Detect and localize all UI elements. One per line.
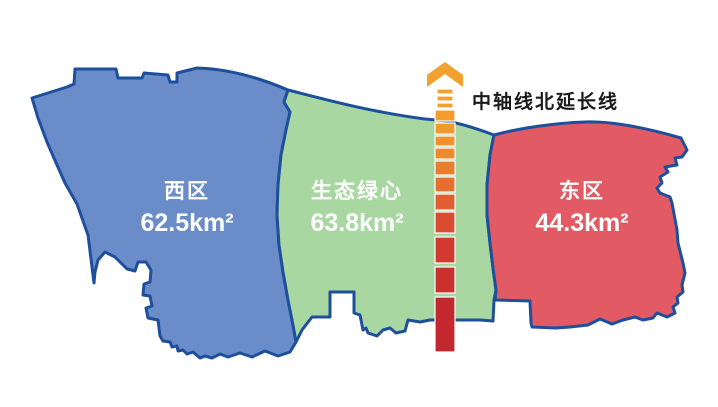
axis-dash-segment	[437, 96, 453, 101]
region-east-shape	[487, 122, 687, 328]
axis-label: 中轴线北延长线	[472, 87, 619, 114]
district-map-figure: 西区 62.5km² 生态绿心 63.8km² 东区 44.3km² 中轴线北延…	[0, 0, 718, 407]
axis-dash-segment	[435, 123, 455, 134]
axis-dash-segment	[435, 136, 455, 146]
axis-dash-line	[435, 89, 455, 352]
axis-dash-segment	[435, 110, 455, 121]
axis-dash-segment	[435, 194, 455, 210]
axis-dash-segment	[435, 237, 455, 263]
map-canvas	[0, 0, 718, 407]
axis-dash-segment	[435, 297, 455, 352]
axis-dash-segment	[437, 89, 453, 94]
region-green-heart-shape	[277, 90, 496, 342]
axis-dash-segment	[435, 212, 455, 233]
axis-dash-segment	[435, 161, 455, 175]
axis-dash-segment	[435, 267, 455, 293]
region-west-shape	[32, 68, 296, 358]
axis-dash-segment	[435, 177, 455, 192]
axis-dash-segment	[435, 148, 455, 159]
axis-arrow-icon	[427, 62, 463, 87]
axis-dash-segment	[437, 103, 453, 108]
